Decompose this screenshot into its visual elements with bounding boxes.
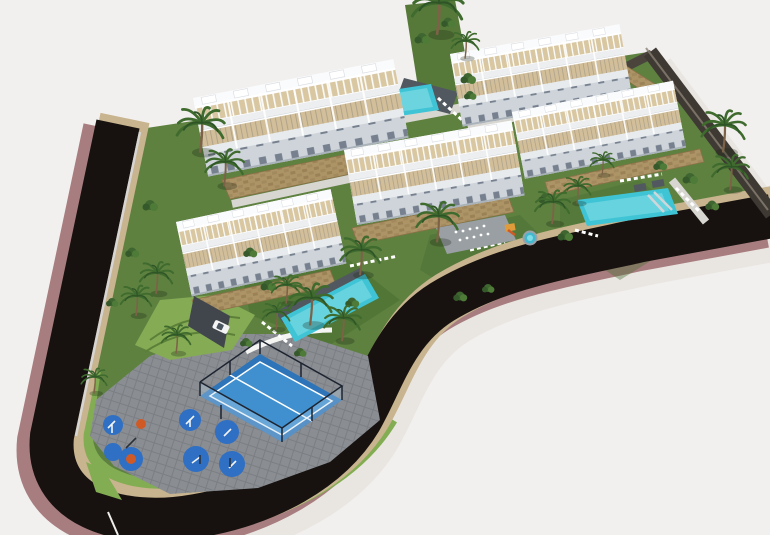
playground-mat-orange [126,454,136,464]
playground-mat-orange [136,419,146,429]
render-canvas: Aerial 3D architectural rendering of a M… [0,0,770,535]
architectural-render: Aerial 3D architectural rendering of a M… [0,0,770,535]
